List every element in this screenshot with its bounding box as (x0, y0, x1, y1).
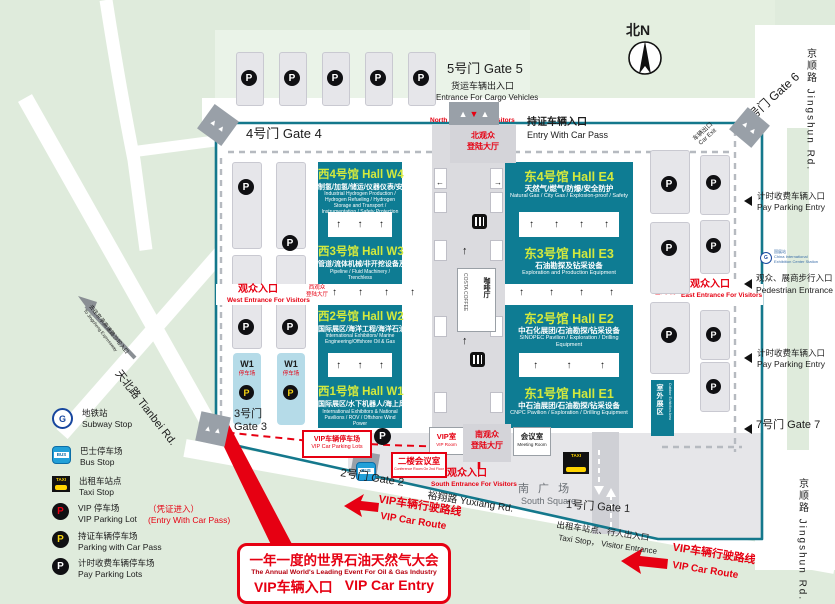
booth-slot (434, 240, 447, 261)
flow-arrow-icon: ↑ (533, 360, 538, 371)
booth-slot (434, 316, 447, 337)
car-pass-entry-cn: 持证车辆入口 (527, 117, 587, 129)
hall-connector: ↑↑↑ (328, 212, 392, 237)
cargo-entrance-cn: 货运车辆出入口 (451, 81, 514, 91)
vip-parking-icon: P (52, 503, 69, 520)
flow-arrow-icon: ↑ (462, 335, 468, 347)
booth-slot (434, 392, 447, 413)
legend-row-bus: BUS 巴士停车场Bus Stop (52, 446, 123, 469)
flow-arrow-icon: ↑ (379, 360, 384, 371)
south-entrance-en: South Entrance For Visitors (431, 481, 517, 488)
flow-arrow-icon: ↑ (336, 219, 341, 230)
vip-car-entry-en: VIP Car Entry (345, 577, 434, 597)
hall-w1-en: International Exhibitors & National Pavi… (320, 409, 400, 427)
flow-arrow-icon: ↑ (579, 287, 584, 298)
south-lobby: 南观众 登陆大厅 (463, 424, 511, 462)
gate7-label: 7号门 Gate 7 (756, 419, 820, 432)
pay-entry-cn: 计时收费车辆入口 (757, 192, 825, 202)
costa-coffee-box: COSTA COFFEE 咖啡厅 (457, 268, 496, 332)
pay-parking-icon: P (413, 70, 429, 86)
exhibition-center-map: P P P P P 5号门 Gate 5 货运车辆出入口 Entrance Fo… (0, 0, 835, 604)
carpass-parking-icon: P (239, 385, 254, 400)
east-entrance-cn: 观众入口 (690, 279, 730, 291)
cargo-entrance-en: Entrance For Cargo Vehicles (436, 93, 538, 102)
jingshun-road-label-top: 京顺路 Jingshun Rd. (804, 48, 816, 171)
legend-row-taxi: TAXI 出租车站点Taxi Stop (52, 476, 122, 499)
pay-parking-icon: P (241, 70, 257, 86)
booth-slot (490, 240, 503, 261)
hall-w2-title: 西2号馆 Hall W2 (318, 308, 402, 324)
gate3-icon: ▲▲ (195, 411, 231, 447)
pay-parking-icon: P (282, 319, 298, 335)
metro-station-icon: G (760, 252, 772, 264)
jingshun-road-label-bottom: 京顺路 Jingshun Rd. (796, 478, 808, 601)
pay-entry-en: Pay Parking Entry (757, 203, 825, 213)
gate4-label: 4号门 Gate 4 (246, 127, 322, 142)
flow-arrow-icon: ↑ (609, 287, 614, 298)
callout-title-cn: 一年一度的世界石油天然气大会 (240, 549, 448, 569)
hall-w1-title: 西1号馆 Hall W1 (318, 383, 402, 399)
vip-parking-icon: P (374, 428, 391, 445)
carpass-parking-icon: P (283, 385, 298, 400)
flow-arrow-icon: ↑ (384, 287, 389, 298)
entry-marker-icon (744, 353, 752, 363)
booth-slot (490, 192, 503, 213)
hall-w3-title: 西3号馆 Hall W3 (318, 243, 402, 259)
flow-arrow-icon: ↑ (529, 219, 534, 230)
hall-w3-en: Pipeline / Fluid Machinery / Trenchless (320, 269, 400, 281)
taxi-stop-icon: TAXI (563, 452, 589, 474)
vip-car-entry-cn: VIP车辆入口 (254, 577, 333, 597)
hall-w2-en: International Exhibitors/ Marine Enginee… (320, 333, 400, 345)
flow-arrow-icon: ↑ (604, 219, 609, 230)
west-lobby-label: 西观众登陆大厅 (306, 285, 328, 299)
carpass-parking-icon: P (52, 531, 69, 548)
pay-parking-icon: P (706, 327, 721, 342)
legend-row-vip-parking: P VIP 停车场VIP Parking Lot (52, 503, 137, 526)
hall-e1-en: CNPC Pavilion / Exploration / Drilling E… (507, 410, 631, 417)
hall-w4-title: 西4号馆 Hall W4 (318, 166, 402, 182)
hall-w1-cn: 国际展区/水下机器人/海上风电 (318, 399, 402, 409)
east-entrance-en: East Entrance For Visitors (681, 292, 762, 299)
bus-icon: BUS (52, 446, 71, 464)
car-pass-entry-en: Entry With Car Pass (527, 130, 608, 140)
escalator-icon (472, 214, 487, 229)
compass-label: 北N (626, 22, 650, 38)
flow-arrow-icon: ↑ (410, 287, 415, 298)
legend-row-pay-parking: P 计时收费车辆停车场Pay Parking Lots (52, 558, 155, 581)
vip-parking-lots-box: VIP车辆停车场 VIP Car Parking Lots (302, 430, 372, 458)
flow-arrow-icon: ↑ (566, 360, 571, 371)
booth-slot (434, 192, 447, 213)
vip-room-box: VIP室 VIP Room (429, 427, 464, 455)
south-square-cn: 南 广 场 (518, 483, 572, 496)
hall-connector: ↑↑↑ (519, 353, 619, 377)
pedestrian-entrance-cn: 观众、展商步行入口 (756, 274, 833, 284)
callout-title-en: The Annual World's Leading Event For Oil… (240, 569, 448, 576)
pay-parking-icon: P (370, 70, 386, 86)
entry-marker-icon (744, 424, 752, 434)
gate3-label: 3号门Gate 3 (234, 408, 267, 434)
outdoor-exhibition-box: 室外展区 Outdoor Exhibition Area (651, 380, 674, 436)
pay-parking-icon: P (52, 558, 69, 575)
flow-arrow-icon: ↑ (549, 287, 554, 298)
w1-parking-box: W1 停车场 P (277, 353, 305, 425)
flow-arrow-icon: ↑ (379, 219, 384, 230)
pay-entry2-en: Pay Parking Entry (757, 360, 825, 370)
lane-in-arrow-icon: ▲ (459, 109, 468, 119)
flow-arrow-icon: ↑ (336, 360, 341, 371)
hall-connector: ↑↑↑↑ (519, 212, 619, 237)
pedestrian-entrance-en: Pedestrian Entrance (756, 286, 833, 296)
flow-arrow-icon: ↑ (600, 360, 605, 371)
flow-arrow-icon: ← (436, 178, 444, 187)
pay-parking-icon: P (661, 327, 677, 343)
pay-parking-icon: P (327, 70, 343, 86)
hall-e4-en: Natural Gas / City Gas / Explosion-proof… (507, 193, 631, 200)
pay-parking-icon: P (238, 179, 254, 195)
pay-entry2-cn: 计时收费车辆入口 (757, 349, 825, 359)
hall-connector: ↑↑↑ (328, 353, 392, 377)
pay-parking-icon: P (661, 240, 677, 256)
pay-parking-icon: P (238, 319, 254, 335)
north-lobby: 北观众 登陆大厅 (450, 125, 516, 163)
legend-row-carpass-parking: P 持证车辆停车场Parking with Car Pass (52, 531, 162, 554)
lane-in-arrow-icon: ▲ (480, 109, 489, 119)
hall-e2-en: SINOPEC Pavilion / Exploration / Drillin… (507, 335, 631, 348)
escalator-icon (470, 352, 485, 367)
entry-marker-icon (744, 279, 752, 289)
lane-vip-arrow-icon: ▼ (470, 109, 479, 119)
hall-w3-cn: 管道/流体机械/非开挖设备及技术 (318, 259, 402, 269)
subway-icon: G (52, 408, 73, 429)
west-parking-strip (232, 162, 262, 249)
pay-parking-icon: P (706, 175, 721, 190)
flow-arrow-icon: ↑ (519, 287, 524, 298)
flow-arrow-icon: ↑ (462, 245, 468, 257)
flow-arrow-icon: ↑ (358, 287, 363, 298)
gate5-label: 5号门 Gate 5 (447, 62, 523, 77)
north-gate-lanes-icon: ▲ ▼ ▲ (449, 102, 499, 126)
metro-station-label: 国展站China International Exhibition Center… (774, 249, 826, 265)
legend-vip-note: （凭证进入）(Entry With Car Pass) (148, 504, 230, 527)
costa-coffee-cn: 咖啡厅 (481, 277, 491, 298)
pay-parking-icon: P (284, 70, 300, 86)
flow-arrow-icon: ↑ (554, 219, 559, 230)
east-parking-strip (650, 222, 690, 294)
pay-parking-icon: P (661, 176, 677, 192)
taxi-icon: TAXI (52, 476, 70, 492)
entry-marker-icon (744, 196, 752, 206)
west-entrance-en: West Entrance For Visitors (227, 297, 310, 304)
south-entrance-cn: 观众入口 (447, 468, 487, 480)
flow-arrow-icon: → (494, 178, 502, 187)
pay-parking-icon: P (706, 379, 721, 394)
meeting-room-box: 会议室 Meeting Room (513, 427, 551, 456)
flow-arrow-icon: ↑ (579, 219, 584, 230)
hall-e3-en: Exploration and Production Equipment (507, 270, 631, 277)
flow-arrow-icon: ↑ (332, 287, 337, 298)
west-entrance-cn: 观众入口 (238, 284, 278, 296)
costa-coffee-en: COSTA COFFEE (462, 273, 468, 311)
pay-parking-icon: P (706, 238, 721, 253)
pay-parking-icon: P (282, 235, 298, 251)
flow-arrow-icon: ↑ (357, 219, 362, 230)
flow-arrow-icon: ↑ (357, 360, 362, 371)
conference-room-box: 二楼会议室 Conference Room On 2nd Floor (391, 452, 447, 478)
vip-entry-callout: 一年一度的世界石油天然气大会 The Annual World's Leadin… (237, 543, 451, 604)
legend-row-subway: G 地铁站Subway Stop (52, 408, 132, 431)
booth-slot (490, 392, 503, 413)
